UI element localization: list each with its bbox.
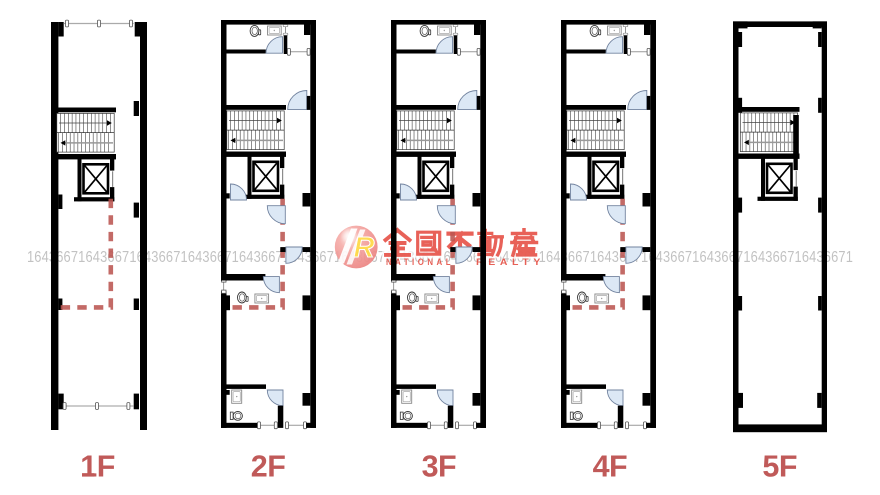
svg-text:R: R xyxy=(354,232,375,264)
svg-text:2F: 2F xyxy=(251,450,286,484)
svg-text:3F: 3F xyxy=(422,450,457,484)
svg-text:5F: 5F xyxy=(762,450,797,484)
svg-text:REALTY: REALTY xyxy=(476,257,545,267)
svg-text:4F: 4F xyxy=(593,450,628,484)
svg-text:1F: 1F xyxy=(80,450,115,484)
